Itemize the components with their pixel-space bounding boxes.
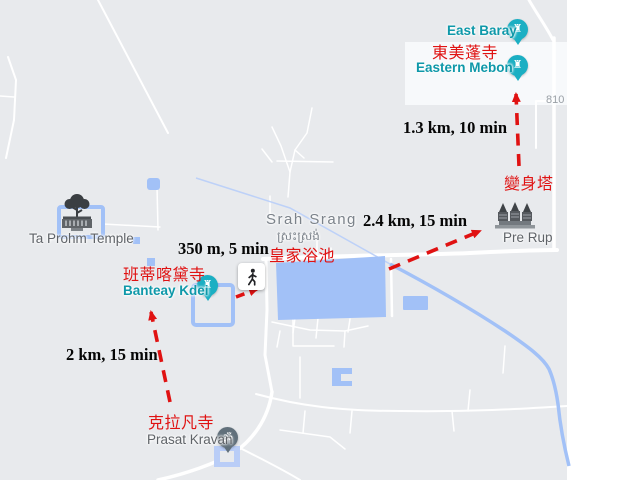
pre-rup-label[interactable]: Pre Rup bbox=[503, 231, 553, 246]
route-banteay-to-srahsrang bbox=[236, 289, 257, 297]
distance-prerup-mebon: 1.3 km, 10 min bbox=[403, 119, 507, 137]
route-prerup-to-mebon bbox=[516, 94, 519, 166]
distance-banteay-srahsrang: 350 m, 5 min bbox=[178, 240, 269, 258]
distance-kravan-banteay: 2 km, 15 min bbox=[66, 346, 158, 364]
srah-srang-label[interactable]: Srah Srang bbox=[266, 212, 357, 229]
pre-rup-chinese-label: 變身塔 bbox=[504, 175, 554, 193]
pedestrian-icon bbox=[242, 267, 262, 287]
distance-srahsrang-prerup: 2.4 km, 15 min bbox=[363, 212, 467, 230]
srah-srang-chinese-label: 皇家浴池 bbox=[269, 247, 335, 265]
banteay-kdei-chinese-label: 班蒂喀黛寺 bbox=[123, 266, 206, 284]
pre-rup-temple-icon[interactable] bbox=[491, 200, 539, 230]
ta-prohm-temple-icon[interactable] bbox=[59, 192, 95, 234]
prasat-kravan-chinese-label: 克拉凡寺 bbox=[148, 414, 214, 432]
walking-route-icon[interactable] bbox=[238, 263, 265, 290]
east-baray-label[interactable]: East Baray bbox=[447, 24, 517, 39]
srah-srang-khmer-label[interactable]: ស្រះស្រង់ bbox=[277, 230, 320, 243]
route-srahsrang-to-prerup bbox=[389, 231, 480, 269]
prasat-kravan-label[interactable]: Prasat Kravan bbox=[147, 433, 233, 448]
eastern-mebon-label[interactable]: Eastern Mebon bbox=[416, 61, 513, 76]
eastern-mebon-chinese-label: 東美蓬寺 bbox=[432, 44, 498, 62]
banteay-kdei-label[interactable]: Banteay Kdei bbox=[123, 284, 209, 299]
route-810-label: 810 bbox=[546, 94, 564, 106]
map-canvas[interactable]: ♜ ♜ ♜ ॐ bbox=[0, 0, 639, 480]
ta-prohm-label[interactable]: Ta Prohm Temple bbox=[29, 232, 134, 247]
temple-pin-icon: ♜ bbox=[513, 60, 523, 71]
